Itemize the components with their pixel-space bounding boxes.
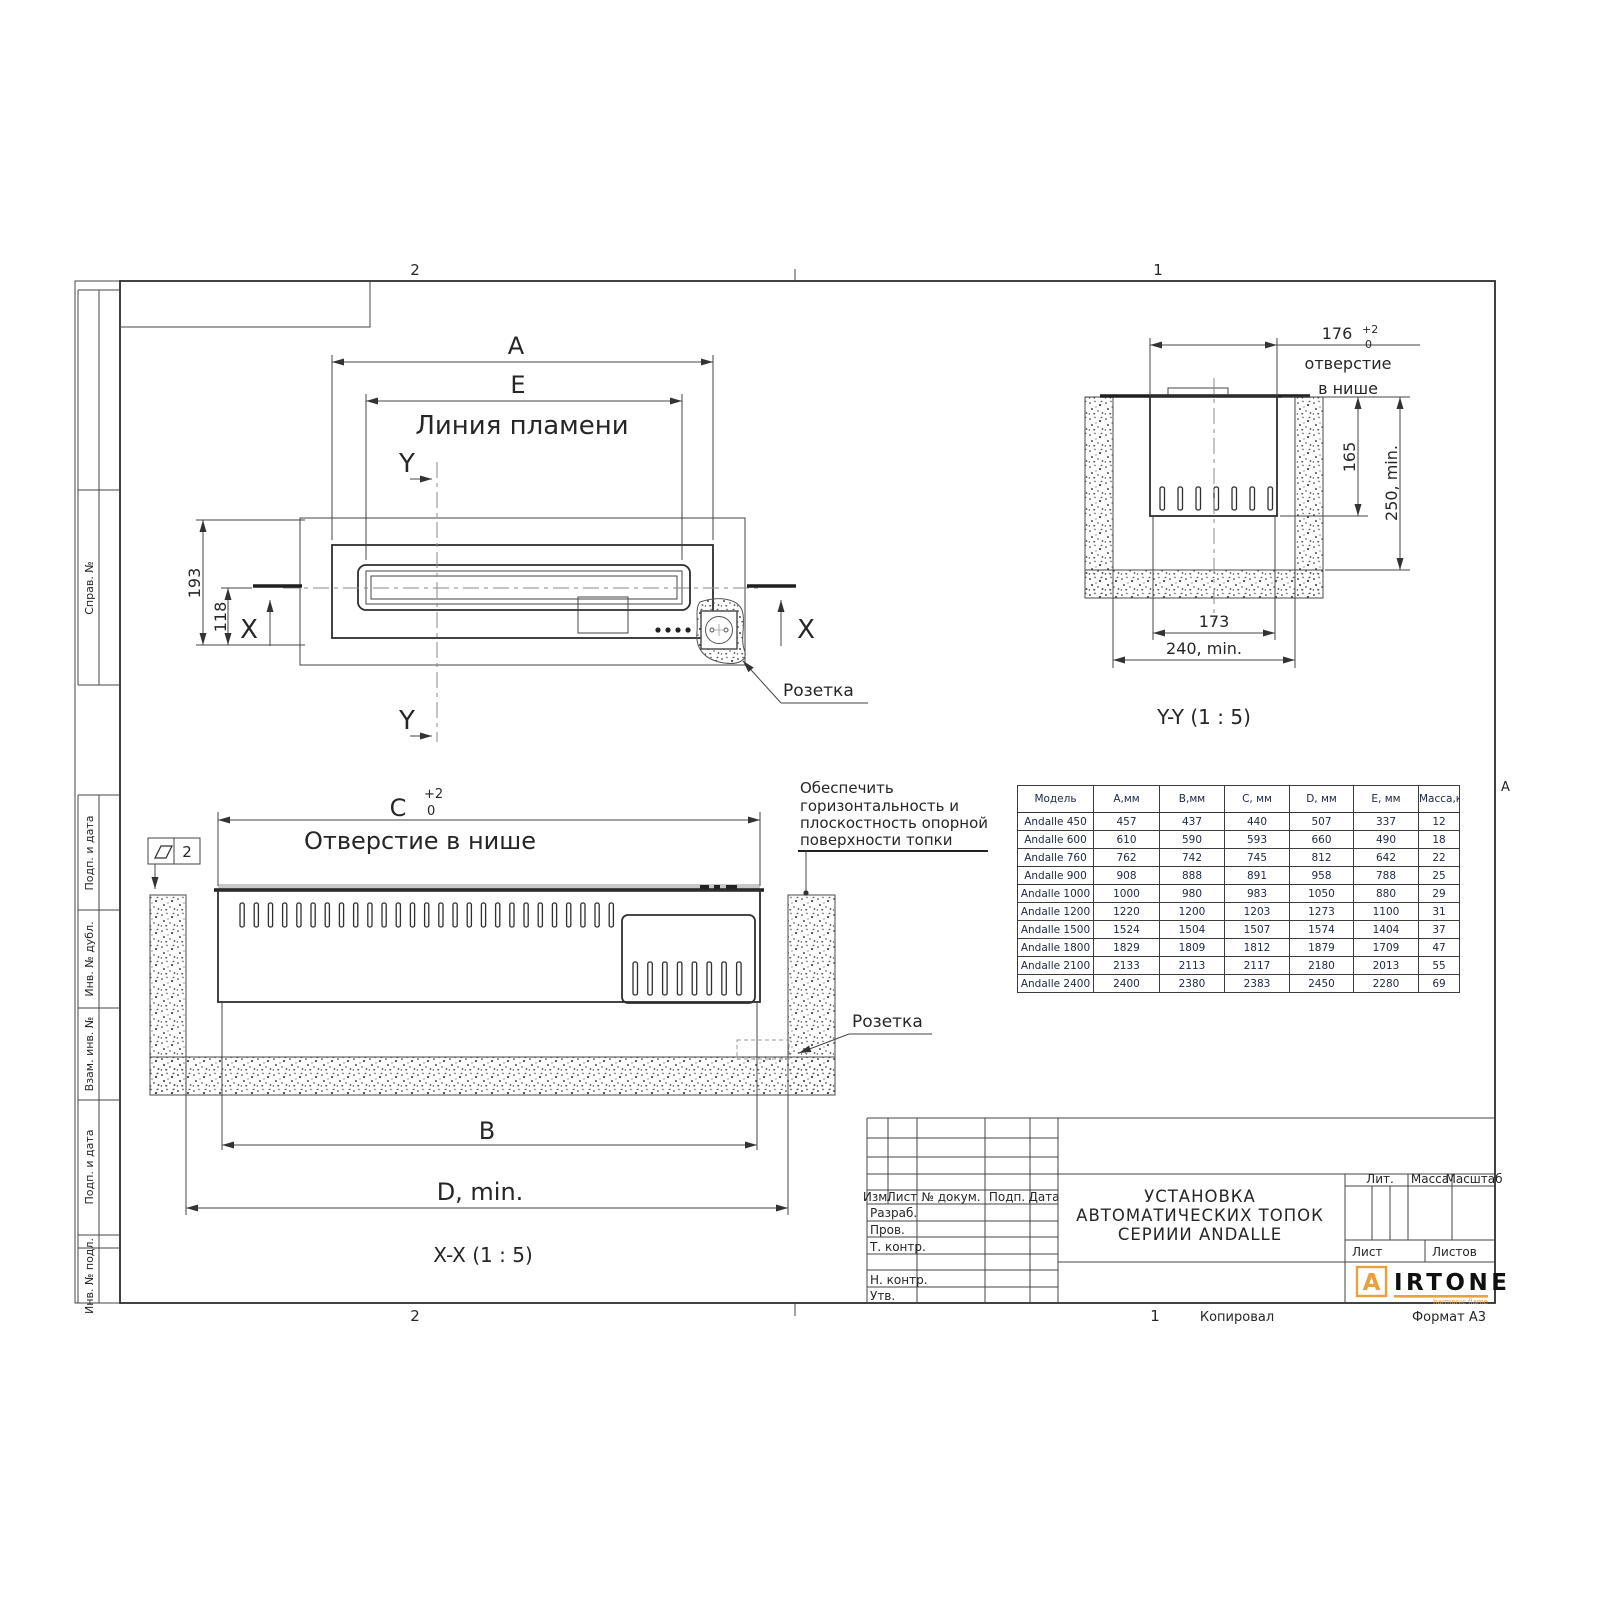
table-cell: 1203 bbox=[1225, 903, 1290, 921]
col-list-label: Лист bbox=[887, 1190, 917, 1204]
table-cell: 812 bbox=[1290, 849, 1354, 867]
table-header-cell: А,мм bbox=[1094, 786, 1160, 813]
table-cell: 980 bbox=[1160, 885, 1225, 903]
yy-dim-173-label: 173 bbox=[1199, 612, 1230, 631]
table-cell: 1220 bbox=[1094, 903, 1160, 921]
note-line3: плоскостность опорной bbox=[800, 814, 988, 832]
role-tkontr: Т. контр. bbox=[869, 1240, 926, 1254]
table-cell: 742 bbox=[1160, 849, 1225, 867]
table-row: Andalle 60061059059366049018 bbox=[1018, 831, 1460, 849]
table-row: Andalle 18001829180918121879170947 bbox=[1018, 939, 1460, 957]
table-cell: 2450 bbox=[1290, 975, 1354, 993]
yy-dim-176-label: 176 bbox=[1322, 324, 1353, 343]
dimensions-table-container: МодельА,ммВ,ммС, ммD, ммЕ, ммМасса,кг An… bbox=[1017, 785, 1460, 993]
dim-table: МодельА,ммВ,ммС, ммD, ммЕ, ммМасса,кг An… bbox=[1017, 785, 1460, 993]
section-x-right-label: X bbox=[797, 615, 815, 645]
table-cell: 610 bbox=[1094, 831, 1160, 849]
table-cell: 1273 bbox=[1290, 903, 1354, 921]
table-cell: 2013 bbox=[1354, 957, 1419, 975]
inv-podl-label: Инв. № подл. bbox=[83, 1238, 96, 1314]
side-column-labels: Справ. № Подп. и дата Инв. № дубл. Взам.… bbox=[83, 561, 96, 1314]
zone-bottom-left: 2 bbox=[410, 1307, 420, 1325]
table-cell: 18 bbox=[1419, 831, 1460, 849]
table-cell: Andalle 760 bbox=[1018, 849, 1094, 867]
xx-burner-slots bbox=[633, 962, 741, 995]
table-row: Andalle 12001220120012031273110031 bbox=[1018, 903, 1460, 921]
xx-top-slots bbox=[240, 903, 613, 927]
table-cell: 490 bbox=[1354, 831, 1419, 849]
table-header-cell: D, мм bbox=[1290, 786, 1354, 813]
indicator-dots-icon bbox=[655, 627, 690, 632]
table-row: Andalle 15001524150415071574140437 bbox=[1018, 921, 1460, 939]
doc-title-line1: УСТАНОВКА bbox=[1144, 1187, 1256, 1206]
dim-e-label: E bbox=[510, 371, 525, 399]
table-cell: Andalle 2400 bbox=[1018, 975, 1094, 993]
table-cell: 1809 bbox=[1160, 939, 1225, 957]
table-cell: 31 bbox=[1419, 903, 1460, 921]
section-y-bottom-label: Y bbox=[398, 706, 415, 736]
listov-label: Листов bbox=[1432, 1245, 1477, 1259]
masshtab-label: Масштаб bbox=[1445, 1172, 1502, 1186]
table-header-cell: В,мм bbox=[1160, 786, 1225, 813]
plan-socket-label: Розетка bbox=[783, 681, 854, 701]
note-line4: поверхности топки bbox=[800, 831, 952, 849]
yy-tol-zero-label: 0 bbox=[1365, 338, 1372, 351]
yy-dim-165-label: 165 bbox=[1340, 442, 1359, 473]
table-cell: 2133 bbox=[1094, 957, 1160, 975]
table-row: Andalle 45045743744050733712 bbox=[1018, 813, 1460, 831]
table-cell: 660 bbox=[1290, 831, 1354, 849]
table-row: Andalle 21002133211321172180201355 bbox=[1018, 957, 1460, 975]
col-data-label: Дата bbox=[1028, 1190, 1059, 1204]
yy-opening-line1: отверстие bbox=[1305, 354, 1392, 373]
flatness-value: 2 bbox=[182, 843, 192, 861]
flatness-tolerance-frame: 2 bbox=[148, 838, 200, 889]
table-cell: 2180 bbox=[1290, 957, 1354, 975]
logo-tagline: harmonic flame bbox=[1433, 1298, 1488, 1306]
table-cell: 457 bbox=[1094, 813, 1160, 831]
table-cell: 593 bbox=[1225, 831, 1290, 849]
table-cell: 2383 bbox=[1225, 975, 1290, 993]
dim-118-label: 118 bbox=[211, 602, 230, 633]
inv-dubl-label: Инв. № дубл. bbox=[83, 921, 96, 996]
xx-dim-d-label: D, min. bbox=[437, 1178, 524, 1206]
table-cell: 29 bbox=[1419, 885, 1460, 903]
yy-burner-slots bbox=[1160, 487, 1273, 510]
table-cell: 2280 bbox=[1354, 975, 1419, 993]
table-cell: 2400 bbox=[1094, 975, 1160, 993]
section-y-top-label: Y bbox=[398, 449, 415, 479]
section-yy-view: 176 +2 0 отверстие в нише 165 250, min. … bbox=[1085, 323, 1420, 729]
xx-socket-label: Розетка bbox=[852, 1012, 923, 1032]
table-header-cell: Модель bbox=[1018, 786, 1094, 813]
table-row: Andalle 90090888889195878825 bbox=[1018, 867, 1460, 885]
section-x-left-label: X bbox=[240, 615, 258, 645]
xx-tol-zero-label: 0 bbox=[427, 804, 435, 819]
table-cell: 437 bbox=[1160, 813, 1225, 831]
zone-bottom-right: 1 bbox=[1150, 1307, 1160, 1325]
table-cell: Andalle 1800 bbox=[1018, 939, 1094, 957]
yy-caption: Y-Y (1 : 5) bbox=[1156, 705, 1251, 729]
table-row: Andalle 24002400238023832450228069 bbox=[1018, 975, 1460, 993]
note-line2: горизонтальность и bbox=[800, 797, 959, 815]
table-cell: 47 bbox=[1419, 939, 1460, 957]
table-cell: 908 bbox=[1094, 867, 1160, 885]
xx-dim-c-label: C bbox=[390, 794, 407, 822]
zone-top-left: 2 bbox=[410, 261, 420, 279]
table-cell: 440 bbox=[1225, 813, 1290, 831]
table-cell: 1050 bbox=[1290, 885, 1354, 903]
dim-a-label: A bbox=[508, 332, 525, 360]
table-cell: 69 bbox=[1419, 975, 1460, 993]
table-cell: 2113 bbox=[1160, 957, 1225, 975]
table-cell: 983 bbox=[1225, 885, 1290, 903]
table-cell: Andalle 1500 bbox=[1018, 921, 1094, 939]
table-cell: 590 bbox=[1160, 831, 1225, 849]
role-nkontr: Н. контр. bbox=[870, 1273, 928, 1287]
flame-line-label: Линия пламени bbox=[415, 411, 628, 441]
table-cell: 788 bbox=[1354, 867, 1419, 885]
yy-tol-plus-label: +2 bbox=[1362, 323, 1378, 336]
table-cell: 1812 bbox=[1225, 939, 1290, 957]
table-cell: 762 bbox=[1094, 849, 1160, 867]
logo-wordmark: IRTONE bbox=[1394, 1270, 1510, 1296]
table-cell: Andalle 1200 bbox=[1018, 903, 1094, 921]
title-block: Изм. Лист № докум. Подп. Дата Разраб. Пр… bbox=[863, 1118, 1511, 1306]
lit-label: Лит. bbox=[1366, 1172, 1394, 1186]
xx-caption: X-X (1 : 5) bbox=[433, 1243, 533, 1267]
table-cell: 1507 bbox=[1225, 921, 1290, 939]
table-cell: 1709 bbox=[1354, 939, 1419, 957]
xx-tol-plus-label: +2 bbox=[424, 787, 443, 802]
zone-letter-right: А bbox=[1501, 780, 1510, 795]
table-cell: 37 bbox=[1419, 921, 1460, 939]
plan-view: Розетка A E Линия пламени Y Y X X 193 11… bbox=[185, 332, 868, 742]
airtone-logo: A IRTONE harmonic flame bbox=[1357, 1267, 1510, 1306]
flatness-icon bbox=[155, 846, 172, 858]
footer-format: Формат А3 bbox=[1412, 1310, 1486, 1325]
massa-label: Масса bbox=[1411, 1172, 1449, 1186]
role-razrab: Разраб. bbox=[870, 1206, 917, 1220]
doc-title-line3: СЕРИИИ ANDALLE bbox=[1118, 1225, 1282, 1244]
table-cell: 1574 bbox=[1290, 921, 1354, 939]
note-line1: Обеспечить bbox=[800, 779, 894, 797]
role-prov: Пров. bbox=[870, 1223, 905, 1237]
yy-dim-240-label: 240, min. bbox=[1166, 639, 1242, 658]
footer-copied: Копировал bbox=[1200, 1310, 1274, 1325]
table-row: Andalle 10001000980983105088029 bbox=[1018, 885, 1460, 903]
dim-193-label: 193 bbox=[185, 568, 204, 599]
table-cell: 891 bbox=[1225, 867, 1290, 885]
col-doc-label: № докум. bbox=[921, 1190, 980, 1204]
yy-opening-line2: в нише bbox=[1318, 379, 1378, 398]
podp-data-label-2: Подп. и дата bbox=[83, 1130, 96, 1205]
levelness-note: Обеспечить горизонтальность и плоскостно… bbox=[798, 779, 988, 896]
table-cell: 2117 bbox=[1225, 957, 1290, 975]
podp-data-label-1: Подп. и дата bbox=[83, 816, 96, 891]
sprav-label: Справ. № bbox=[83, 561, 96, 615]
table-cell: 25 bbox=[1419, 867, 1460, 885]
table-cell: 1200 bbox=[1160, 903, 1225, 921]
doc-title-line2: АВТОМАТИЧЕСКИХ ТОПОК bbox=[1076, 1206, 1324, 1225]
table-cell: 642 bbox=[1354, 849, 1419, 867]
col-podp-label: Подп. bbox=[989, 1190, 1025, 1204]
vzam-inv-label: Взам. инв. № bbox=[83, 1017, 96, 1092]
zone-top-right: 1 bbox=[1153, 261, 1163, 279]
table-header-cell: Масса,кг bbox=[1419, 786, 1460, 813]
table-cell: 1404 bbox=[1354, 921, 1419, 939]
table-cell: 1829 bbox=[1094, 939, 1160, 957]
socket-icon bbox=[697, 599, 746, 664]
table-header-cell: Е, мм bbox=[1354, 786, 1419, 813]
table-cell: 12 bbox=[1419, 813, 1460, 831]
table-cell: 2380 bbox=[1160, 975, 1225, 993]
table-cell: 507 bbox=[1290, 813, 1354, 831]
table-cell: Andalle 600 bbox=[1018, 831, 1094, 849]
drawing-sheet: Справ. № Подп. и дата Инв. № дубл. Взам.… bbox=[0, 0, 1600, 1600]
table-cell: 1100 bbox=[1354, 903, 1419, 921]
table-cell: Andalle 1000 bbox=[1018, 885, 1094, 903]
table-cell: Andalle 2100 bbox=[1018, 957, 1094, 975]
table-cell: 1879 bbox=[1290, 939, 1354, 957]
table-cell: 880 bbox=[1354, 885, 1419, 903]
table-header-cell: С, мм bbox=[1225, 786, 1290, 813]
dim-table-header-row: МодельА,ммВ,ммС, ммD, ммЕ, ммМасса,кг bbox=[1018, 786, 1460, 813]
table-cell: 1000 bbox=[1094, 885, 1160, 903]
table-cell: 958 bbox=[1290, 867, 1354, 885]
list-label: Лист bbox=[1352, 1245, 1382, 1259]
table-cell: 337 bbox=[1354, 813, 1419, 831]
table-cell: Andalle 900 bbox=[1018, 867, 1094, 885]
table-cell: 745 bbox=[1225, 849, 1290, 867]
table-cell: 1524 bbox=[1094, 921, 1160, 939]
logo-a-letter: A bbox=[1363, 1270, 1381, 1296]
table-cell: Andalle 450 bbox=[1018, 813, 1094, 831]
table-cell: 888 bbox=[1160, 867, 1225, 885]
table-row: Andalle 76076274274581264222 bbox=[1018, 849, 1460, 867]
xx-dim-b-label: B bbox=[479, 1117, 495, 1145]
table-cell: 22 bbox=[1419, 849, 1460, 867]
xx-opening-label: Отверстие в нише bbox=[304, 827, 536, 855]
yy-dim-250-label: 250, min. bbox=[1382, 445, 1401, 521]
table-cell: 55 bbox=[1419, 957, 1460, 975]
role-utv: Утв. bbox=[870, 1289, 895, 1303]
top-vent-marks-icon bbox=[700, 885, 737, 889]
table-cell: 1504 bbox=[1160, 921, 1225, 939]
